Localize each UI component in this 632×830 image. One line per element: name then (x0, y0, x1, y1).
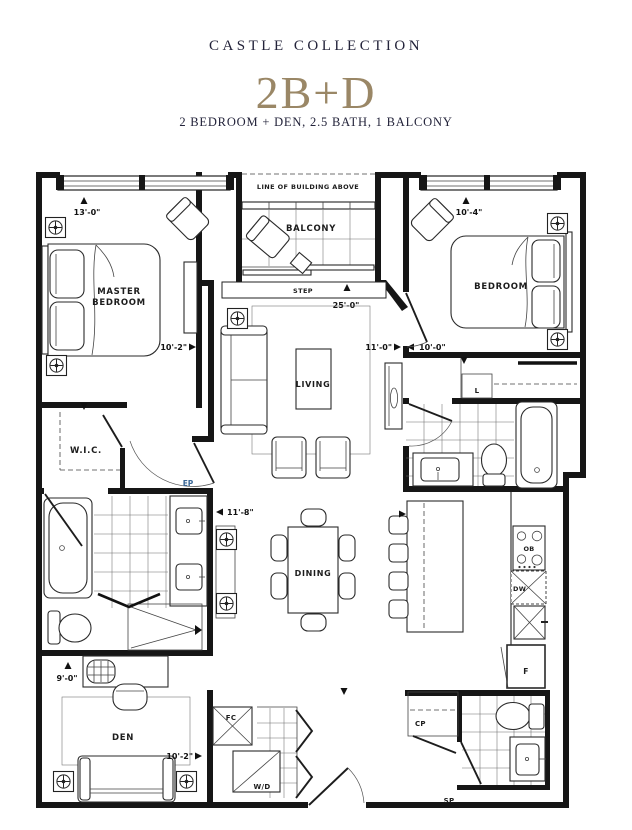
dishwasher: DW (511, 571, 546, 604)
balcony: LINE OF BUILDING ABOVE BALCONY (242, 174, 375, 275)
wic-door (103, 415, 122, 447)
floor-plan: CASTLE COLLECTION 2B+D 2 BEDROOM + DEN, … (0, 0, 632, 830)
master-bedroom-label-2: BEDROOM (92, 298, 146, 308)
living-chair (272, 437, 306, 478)
dining-chair (271, 573, 287, 599)
den-desk (83, 656, 168, 687)
ceiling-light-icon (217, 594, 237, 614)
ceiling-light-icon (54, 772, 74, 792)
bath-vanity (413, 453, 473, 486)
master-bedroom: 13'-0" 10'-2" MASTER BEDROOM (42, 196, 214, 486)
kitchen-island (389, 501, 463, 632)
collection-title: CASTLE COLLECTION (209, 38, 423, 54)
ensuite-bath: EP 11'-8" (44, 479, 254, 650)
dining-chair (301, 614, 326, 631)
living-chair (316, 437, 350, 478)
dimension-den-width: 9'-0" (56, 674, 77, 683)
ensuite-tub (44, 498, 92, 598)
bedroom-window (419, 175, 561, 190)
dining: DINING (271, 509, 355, 695)
entry-door-arc (348, 768, 364, 803)
living-room: LIVING 11'-0" (221, 306, 402, 478)
bar-stool (389, 516, 408, 534)
main-bath (406, 402, 557, 488)
balcony-label: BALCONY (286, 224, 336, 234)
den-label: DEN (112, 733, 134, 743)
fridge-label: F (523, 667, 528, 676)
dining-chair (271, 535, 287, 561)
bar-stool (389, 544, 408, 562)
coat-closet: CP (408, 692, 458, 753)
floorplan-page: CASTLE COLLECTION 2B+D 2 BEDROOM + DEN, … (0, 0, 632, 830)
balcony-chair (245, 215, 291, 260)
master-door-arc (130, 441, 214, 487)
den: 9'-0" DEN 10'-2" (54, 656, 203, 802)
bathtub (516, 402, 557, 488)
coat-closet-label: CP (415, 720, 426, 728)
sp-label: SP (444, 797, 455, 805)
bifold-doors (296, 710, 312, 798)
bath-door-arc (409, 421, 452, 446)
step-label: STEP (293, 287, 313, 295)
oven-label: OB (523, 545, 534, 553)
ceiling-light-icon (228, 309, 248, 329)
wic-shelving (60, 412, 120, 470)
dining-chair (339, 573, 355, 599)
powder-door (461, 742, 481, 784)
dishwasher-label: DW (513, 585, 526, 593)
den-chair (113, 684, 147, 710)
dimension-bedroom-width: 10'-4" (456, 208, 483, 217)
powder-toilet (496, 703, 544, 730)
shower-door (98, 594, 160, 607)
master-armchair (165, 196, 210, 241)
ceiling-light-icon (217, 530, 237, 550)
ensuite-toilet (48, 611, 91, 644)
bedroom-label: BEDROOM (474, 282, 528, 292)
entry-door (309, 768, 348, 805)
linen-label: L (475, 387, 480, 395)
line-of-building-label: LINE OF BUILDING ABOVE (257, 183, 359, 191)
ensuite-vanity (170, 496, 207, 606)
ceiling-light-icon (548, 214, 568, 234)
master-dresser (184, 262, 197, 333)
bar-stool (389, 572, 408, 590)
laundry: FC W/D (213, 707, 364, 805)
plan-name: 2B+D (256, 67, 377, 118)
master-door (194, 443, 214, 483)
dimension-ensuite: 11'-8" (227, 508, 254, 517)
fridge: F (501, 645, 545, 688)
ceiling-light-icon (548, 330, 568, 350)
dining-label: DINING (295, 569, 332, 578)
dimension-master-depth: 10'-2" (160, 343, 187, 352)
ep-label: EP (183, 479, 194, 488)
dining-wall-unit (216, 526, 237, 618)
dimension-overall: 25'-0" (333, 301, 360, 310)
wic-label: W.I.C. (70, 446, 102, 456)
ceiling-light-icon (177, 772, 197, 792)
den-sofa (78, 756, 175, 802)
dimension-den-depth: 10'-2" (166, 752, 193, 761)
header: CASTLE COLLECTION 2B+D 2 BEDROOM + DEN, … (179, 38, 452, 129)
fan-coil-label: FC (226, 714, 237, 722)
bath-door (409, 404, 452, 421)
ceiling-light-icon (47, 356, 67, 376)
toilet (482, 444, 507, 486)
tv-console (385, 363, 402, 429)
fan-coil: FC (213, 707, 252, 745)
living-label: LIVING (296, 380, 331, 389)
master-bedroom-label-1: MASTER (97, 287, 141, 297)
balcony-rail (242, 202, 375, 209)
tile-grid (94, 496, 168, 608)
plan-subtitle: 2 BEDROOM + DEN, 2.5 BATH, 1 BALCONY (179, 115, 452, 129)
dining-chair (339, 535, 355, 561)
washer-dryer-label: W/D (254, 783, 271, 791)
washer-dryer: W/D (233, 751, 280, 792)
powder-vanity (510, 737, 546, 781)
bedroom-door (406, 293, 427, 342)
bar-stool (389, 600, 408, 618)
bedroom-2: 10'-4" 10'-0" BEDROOM (406, 197, 572, 364)
wic: W.I.C. (60, 412, 122, 470)
dining-chair (301, 509, 326, 526)
dimension-living-width: 11'-0" (365, 343, 392, 352)
living-sofa (221, 326, 267, 434)
dimension-master-width: 13'-0" (74, 208, 101, 217)
linen-closet: L (461, 358, 577, 398)
kitchen: OB DW F (389, 492, 548, 688)
master-window (56, 175, 234, 190)
coat-closet-door (413, 736, 456, 753)
kitchen-sink (514, 606, 548, 639)
coffee-table (296, 349, 331, 409)
dimension-bedroom-depth: 10'-0" (419, 343, 446, 352)
bedroom-armchair (409, 197, 454, 242)
cooktop: OB (513, 526, 545, 570)
ceiling-light-icon (46, 218, 66, 238)
